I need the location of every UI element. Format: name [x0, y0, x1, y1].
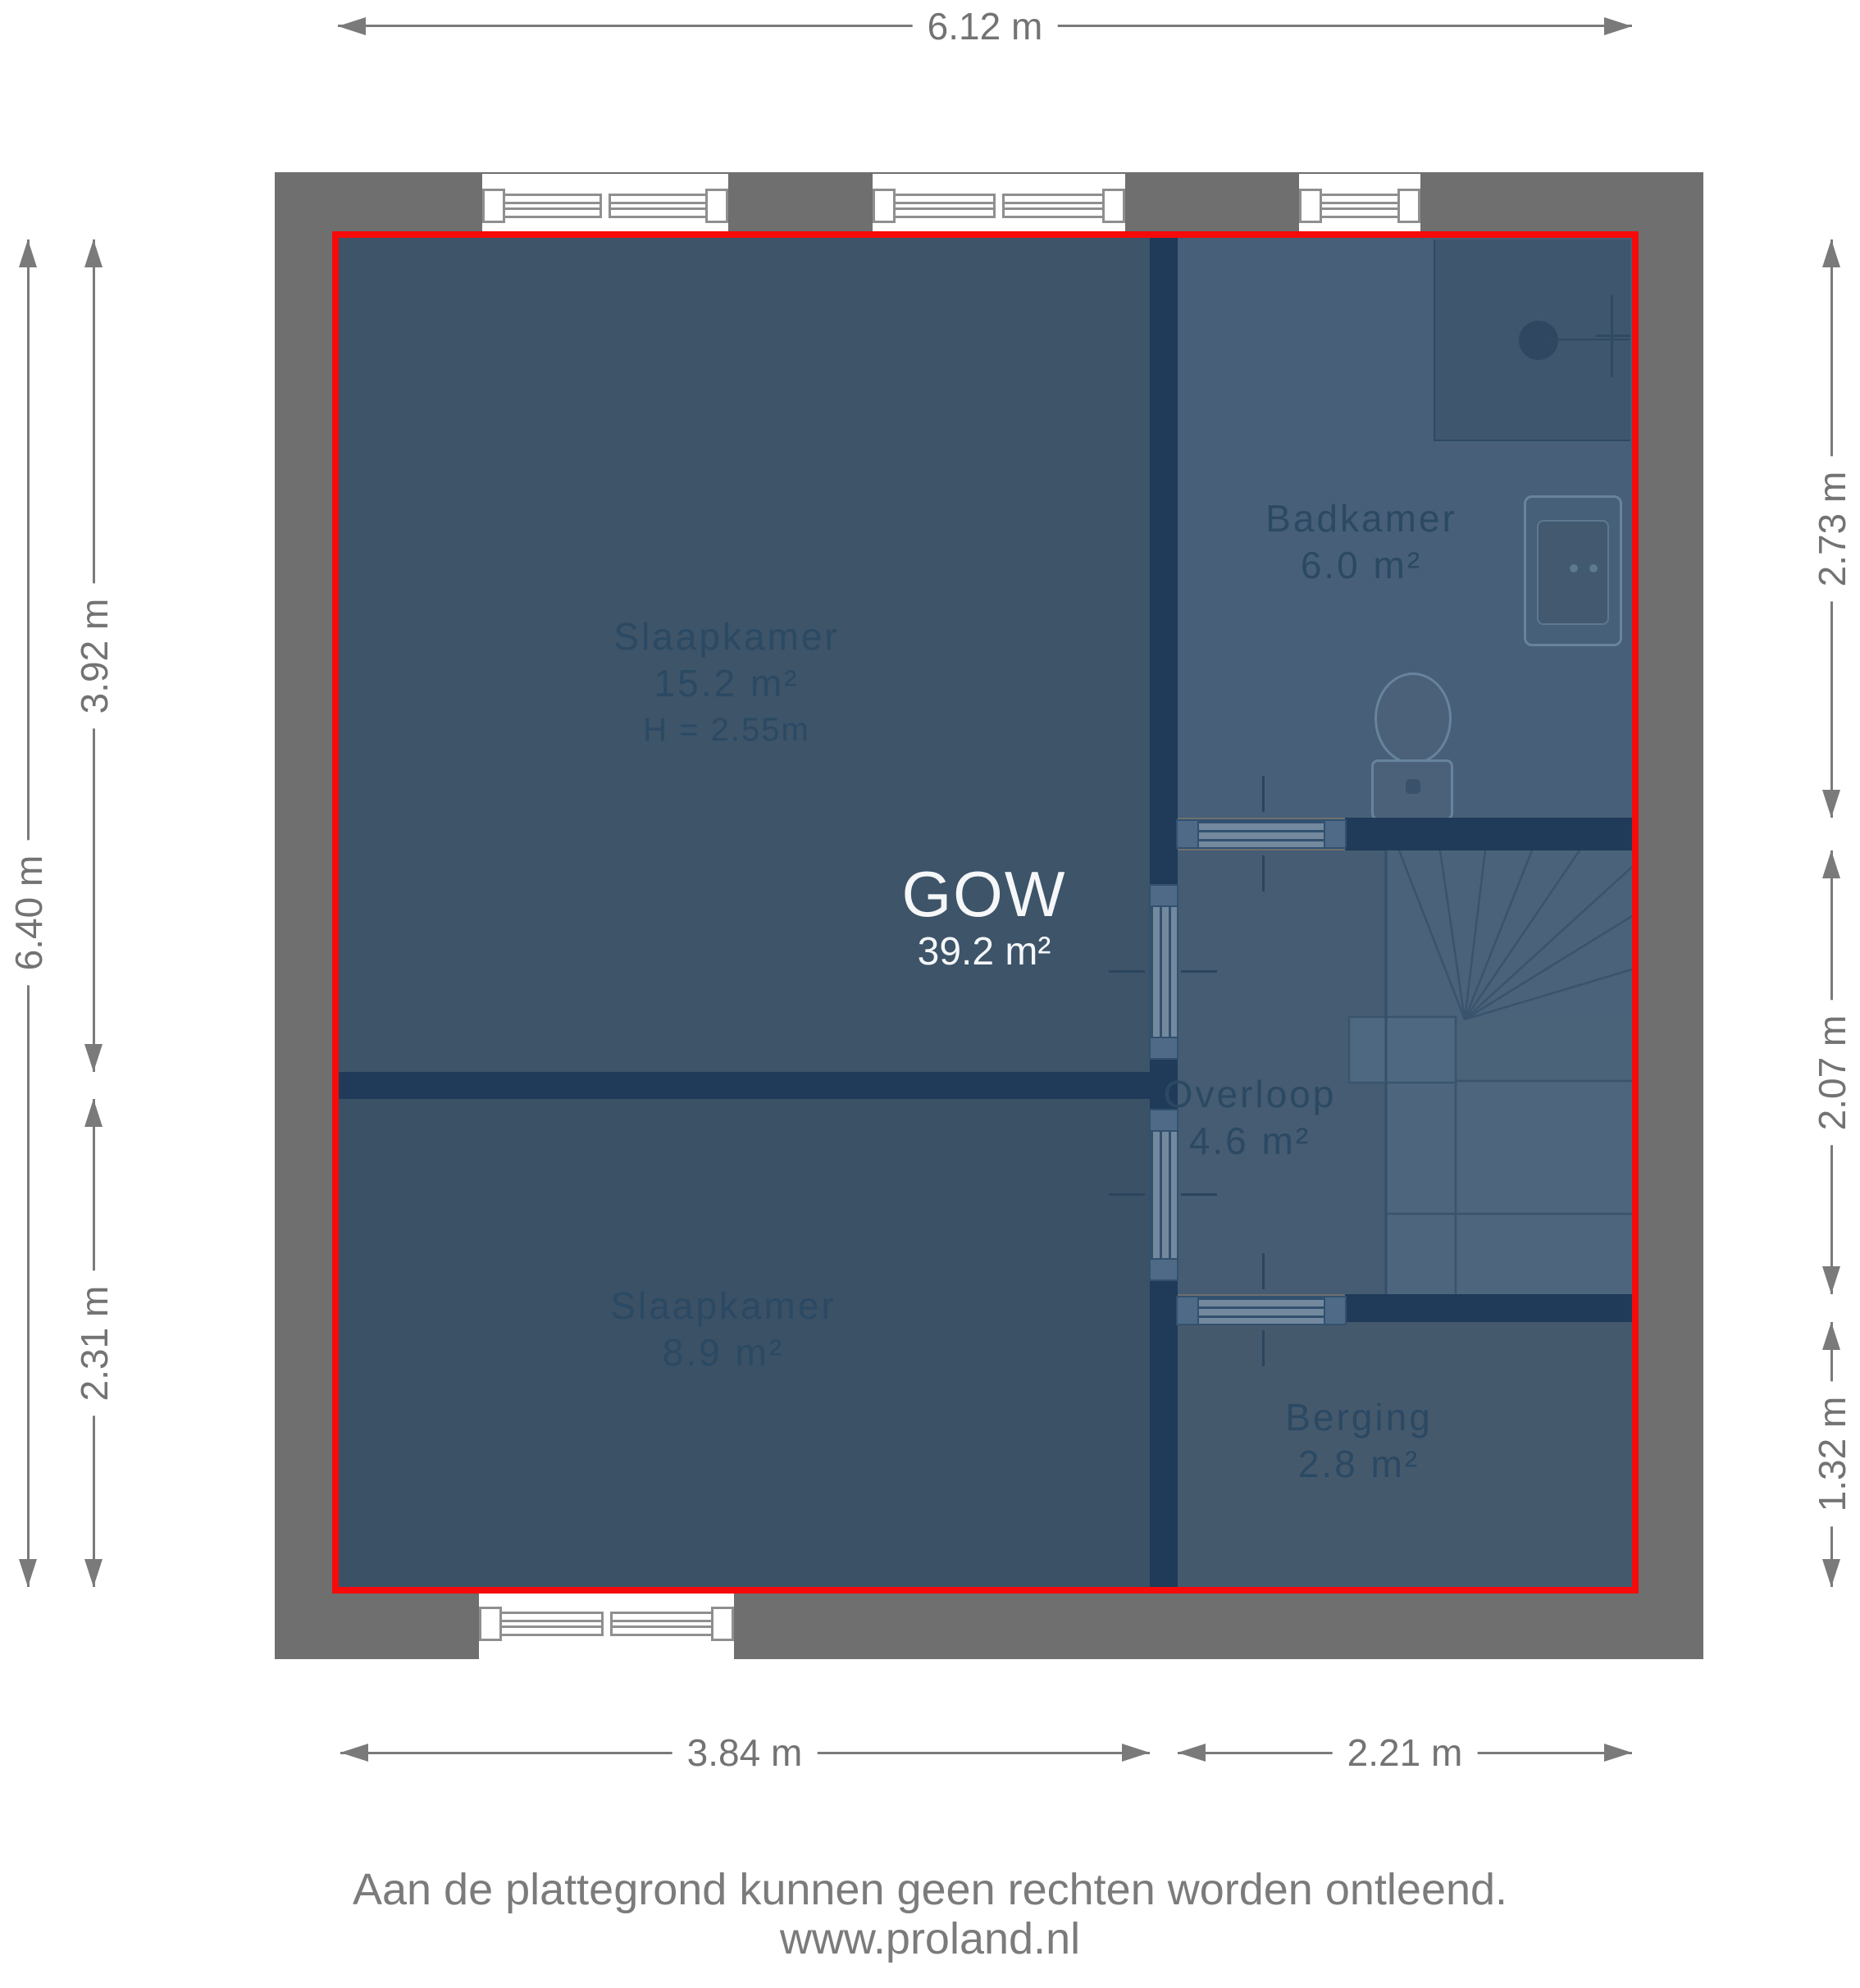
- window-symbol-top-1: [482, 174, 728, 238]
- gow-outline: [332, 231, 1639, 1594]
- arrow-icon: [1822, 239, 1840, 267]
- arrow-icon: [84, 239, 103, 267]
- arrow-icon: [1822, 1322, 1840, 1350]
- window-symbol-top-2: [873, 174, 1125, 238]
- arrow-icon: [1604, 17, 1632, 35]
- footer-disclaimer: Aan de plattegrond kunnen geen rechten w…: [0, 1865, 1860, 1914]
- arrow-icon: [1822, 1559, 1840, 1587]
- arrow-icon: [338, 17, 366, 35]
- arrow-icon: [340, 1744, 368, 1762]
- arrow-icon: [84, 1559, 103, 1587]
- footer-website: www.proland.nl: [0, 1914, 1860, 1963]
- arrow-icon: [84, 1099, 103, 1127]
- arrow-icon: [1122, 1744, 1150, 1762]
- arrow-icon: [84, 1044, 103, 1072]
- dimension-right-middle: 2.07 m: [1805, 1001, 1859, 1146]
- arrow-icon: [1178, 1744, 1206, 1762]
- dimension-bottom-left: 3.84 m: [672, 1726, 818, 1780]
- dimension-right-lower: 1.32 m: [1805, 1382, 1859, 1527]
- arrow-icon: [1604, 1744, 1632, 1762]
- dimension-bottom-right: 2.21 m: [1333, 1726, 1478, 1780]
- dimension-left-total: 6.40 m: [2, 841, 56, 986]
- dimension-left-upper: 3.92 m: [67, 584, 121, 729]
- arrow-icon: [1822, 790, 1840, 818]
- dimension-left-lower: 2.31 m: [67, 1271, 121, 1416]
- floorplan-canvas: Slaapkamer 15.2 m² H = 2.55m Badkamer 6.…: [0, 0, 1860, 1988]
- arrow-icon: [19, 239, 37, 267]
- arrow-icon: [19, 1559, 37, 1587]
- arrow-icon: [1822, 1266, 1840, 1294]
- window-symbol-top-3: [1299, 174, 1420, 238]
- dimension-right-upper: 2.73 m: [1805, 457, 1859, 602]
- window-symbol-bottom: [479, 1594, 734, 1659]
- dimension-top-width: 6.12 m: [913, 0, 1058, 53]
- arrow-icon: [1822, 850, 1840, 878]
